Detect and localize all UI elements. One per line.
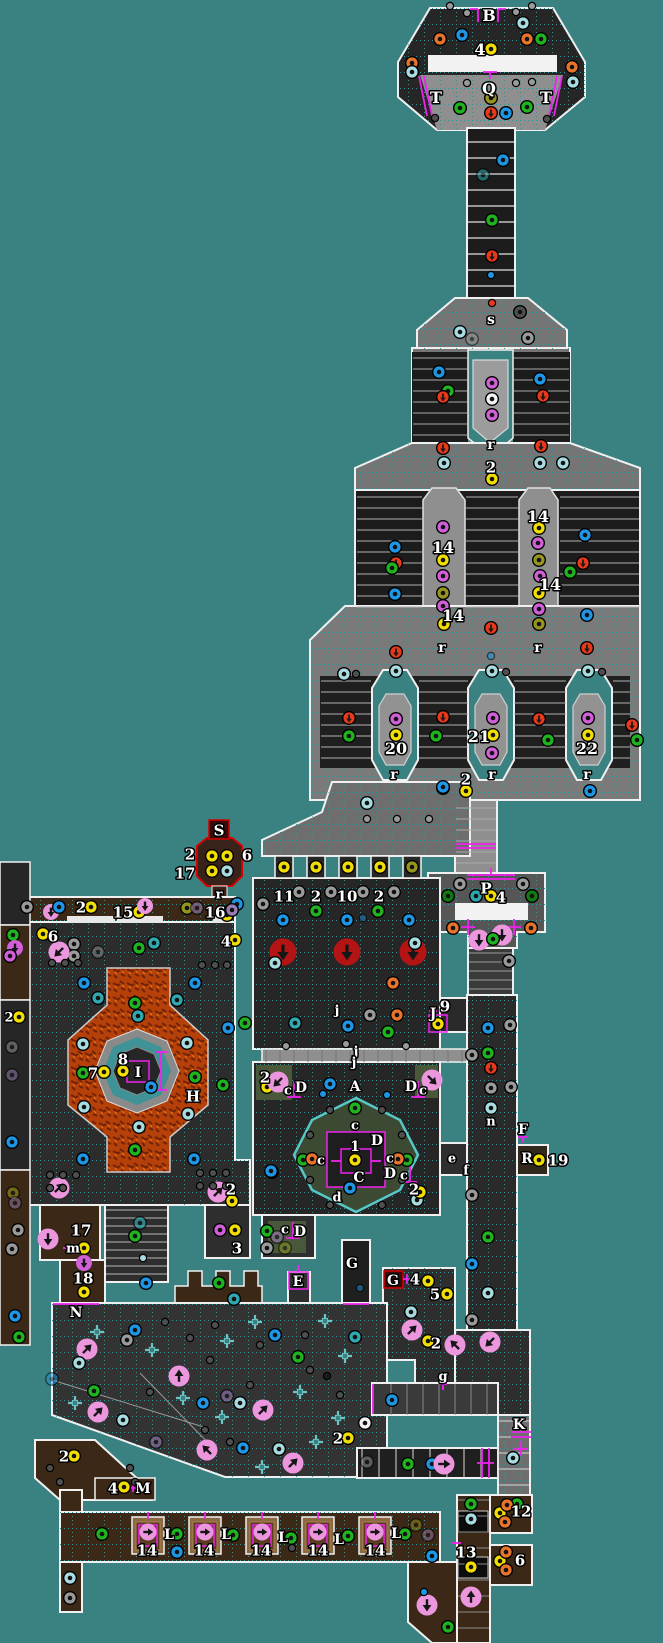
item-ring-marker — [405, 65, 419, 79]
map-label: j — [351, 1056, 357, 1071]
spawn-arrow-marker — [367, 1524, 384, 1541]
item-dot-marker — [323, 1372, 331, 1380]
item-dot-marker — [59, 1171, 67, 1179]
spawn-arrow-marker — [254, 1524, 271, 1541]
map-sector — [355, 490, 640, 622]
map-label: 14 — [251, 1541, 272, 1559]
item-dot-marker — [342, 1040, 350, 1048]
item-ring-marker — [566, 75, 580, 89]
item-ring-marker — [288, 1016, 302, 1030]
item-dot-marker — [543, 115, 551, 123]
arrow-ring-marker — [625, 718, 639, 732]
item-ring-marker — [190, 901, 204, 915]
map-label: j — [334, 1004, 340, 1019]
item-ring-marker — [221, 1021, 235, 1035]
map-label: 4 — [496, 888, 506, 906]
item-dot-marker — [359, 914, 367, 922]
item-ring-marker — [516, 877, 530, 891]
item-ring-marker — [77, 1100, 91, 1114]
item-ring-marker — [465, 1048, 479, 1062]
item-ring-marker — [503, 1018, 517, 1032]
item-ring-marker — [404, 1305, 418, 1319]
item-ring-marker — [371, 904, 385, 918]
item-ring-marker — [453, 101, 467, 115]
map-label: 21 — [468, 727, 490, 746]
item-dot-marker — [211, 1321, 219, 1329]
map-label: r — [488, 767, 496, 783]
item-ring-marker — [520, 100, 534, 114]
item-dot-marker — [425, 815, 433, 823]
level-map-canvas: B4QTTsr214141414rr202122rrr2P4nFR19ef9JS… — [0, 0, 663, 1643]
item-ring-marker — [385, 1393, 399, 1407]
item-ring-marker — [147, 936, 161, 950]
spawn-arrow-marker — [310, 1524, 327, 1541]
map-label: A — [349, 1079, 362, 1095]
map-label: G — [346, 1256, 358, 1272]
item-ring-marker — [337, 667, 351, 681]
item-ring-marker — [389, 664, 403, 678]
map-label: D — [384, 1166, 396, 1182]
item-ring-marker — [117, 1480, 131, 1494]
item-ring-marker — [5, 1135, 19, 1149]
item-ring-marker — [228, 1223, 242, 1237]
map-label: 8 — [118, 1050, 128, 1068]
map-label: E — [293, 1274, 304, 1290]
item-ring-marker — [464, 1497, 478, 1511]
item-dot-marker — [56, 1478, 64, 1486]
map-label: 2 — [260, 1068, 270, 1086]
item-dot-marker — [398, 1131, 406, 1139]
item-ring-marker — [502, 954, 516, 968]
item-ring-marker — [421, 1528, 435, 1542]
item-ring-marker — [131, 1009, 145, 1023]
map-label: r — [487, 437, 495, 453]
spawn-arrow-marker — [434, 1454, 455, 1475]
map-grid-overlay — [355, 443, 640, 492]
item-ring-marker — [481, 1230, 495, 1244]
map-label: 2 — [333, 1429, 343, 1447]
map-label: c — [351, 1119, 359, 1134]
item-ring-marker — [95, 1527, 109, 1541]
map-label: H — [186, 1087, 200, 1105]
item-ring-marker — [277, 860, 291, 874]
item-ring-marker — [583, 784, 597, 798]
item-dot-marker — [326, 1106, 334, 1114]
item-ring-marker — [405, 860, 419, 874]
map-label: 13 — [456, 1543, 477, 1561]
arrow-ring-marker — [580, 641, 594, 655]
map-label: L — [278, 1530, 288, 1546]
item-ring-marker — [341, 1019, 355, 1033]
item-ring-marker — [534, 32, 548, 46]
item-dot-marker — [46, 1464, 54, 1472]
map-label: 4 — [474, 40, 485, 59]
item-dot-marker — [209, 1182, 217, 1190]
item-ring-marker — [236, 1441, 250, 1455]
item-ring-marker — [532, 553, 546, 567]
item-ring-marker — [485, 664, 499, 678]
map-label: 2 — [59, 1447, 69, 1465]
arrow-ring-marker — [342, 711, 356, 725]
item-ring-marker — [12, 1010, 26, 1024]
item-dot-marker — [352, 670, 360, 678]
item-ring-marker — [513, 305, 527, 319]
map-label: 2 — [76, 898, 86, 916]
item-ring-marker — [67, 937, 81, 951]
item-ring-marker — [188, 1070, 202, 1084]
map-label: L — [391, 1526, 401, 1542]
item-ring-marker — [76, 1037, 90, 1051]
item-dot-marker — [246, 1381, 254, 1389]
spawn-arrow-marker — [169, 1366, 190, 1387]
arrow-ring-marker — [484, 1061, 498, 1075]
item-ring-marker — [149, 1435, 163, 1449]
item-ring-marker — [521, 331, 535, 345]
item-ring-marker — [72, 1356, 86, 1370]
item-ring-marker — [8, 1309, 22, 1323]
map-label: 2 — [4, 1011, 13, 1026]
item-ring-marker — [388, 587, 402, 601]
item-ring-marker — [581, 711, 595, 725]
item-ring-marker — [453, 877, 467, 891]
arrow-ring-marker — [484, 621, 498, 635]
item-dot-marker — [226, 1438, 234, 1446]
map-label: 17 — [71, 1221, 92, 1239]
item-ring-marker — [340, 913, 354, 927]
map-label: T — [430, 88, 442, 107]
item-ring-marker — [563, 565, 577, 579]
item-dot-marker — [356, 1284, 364, 1292]
map-label: 3 — [232, 1239, 242, 1257]
item-ring-marker — [481, 1046, 495, 1060]
map-label: 2 — [311, 887, 321, 905]
item-dot-marker — [420, 1588, 428, 1596]
item-ring-marker — [531, 536, 545, 550]
item-ring-marker — [425, 1549, 439, 1563]
arrow-ring-marker — [485, 249, 499, 263]
map-label: 6 — [242, 846, 252, 864]
map-rect — [428, 55, 557, 72]
item-ring-marker — [429, 729, 443, 743]
item-ring-marker — [5, 1068, 19, 1082]
item-ring-marker — [484, 1101, 498, 1115]
item-ring-marker — [6, 928, 20, 942]
item-ring-marker — [52, 900, 66, 914]
item-ring-marker — [5, 1040, 19, 1054]
item-ring-marker — [12, 1330, 26, 1344]
item-ring-marker — [385, 561, 399, 575]
map-label: 15 — [113, 903, 134, 921]
item-dot-marker — [46, 1184, 54, 1192]
item-ring-marker — [486, 932, 500, 946]
item-ring-marker — [504, 1080, 518, 1094]
map-label: r — [438, 640, 446, 656]
item-dot-marker — [402, 1042, 410, 1050]
map-label: d — [332, 1191, 341, 1206]
map-label: D — [294, 1224, 306, 1240]
map-label: 2 — [185, 845, 195, 863]
map-label: c — [386, 1152, 394, 1167]
item-ring-marker — [128, 1143, 142, 1157]
item-ring-marker — [20, 900, 34, 914]
item-dot-marker — [306, 1131, 314, 1139]
map-label: P — [480, 879, 491, 897]
item-dot-marker — [256, 1341, 264, 1349]
item-ring-marker — [5, 1242, 19, 1256]
spawn-arrow-marker — [461, 1587, 482, 1608]
item-dot-marker — [59, 1184, 67, 1192]
item-dot-marker — [209, 1169, 217, 1177]
item-ring-marker — [132, 941, 146, 955]
item-ring-marker — [441, 889, 455, 903]
item-dot-marker — [139, 1254, 147, 1262]
item-ring-marker — [309, 904, 323, 918]
item-ring-marker — [264, 1164, 278, 1178]
item-ring-marker — [213, 1223, 227, 1237]
item-ring-marker — [436, 569, 450, 583]
arrow-ring-marker — [576, 556, 590, 570]
item-dot-marker — [288, 1544, 296, 1552]
item-ring-marker — [181, 1107, 195, 1121]
doom-level-map: B4QTTsr214141414rr202122rrr2P4nFR19ef9JS… — [0, 0, 663, 1643]
item-dot-marker — [222, 1169, 230, 1177]
item-ring-marker — [132, 1120, 146, 1134]
map-label: Q — [482, 79, 496, 98]
map-label: g — [438, 1370, 447, 1385]
item-ring-marker — [341, 860, 355, 874]
item-ring-marker — [401, 1457, 415, 1471]
map-label: 11 — [274, 887, 295, 905]
map-label: 5 — [430, 1285, 440, 1303]
map-label: 4 — [410, 1270, 420, 1288]
item-dot-marker — [46, 1171, 54, 1179]
item-dot-marker — [306, 1366, 314, 1374]
item-dot-marker — [446, 2, 454, 10]
item-ring-marker — [128, 1229, 142, 1243]
item-ring-marker — [45, 1372, 59, 1386]
map-label: I — [135, 1065, 142, 1081]
map-rect — [67, 916, 115, 923]
map-label: e — [448, 1152, 456, 1167]
map-label: S — [214, 821, 225, 839]
item-ring-marker — [170, 1545, 184, 1559]
item-ring-marker — [268, 956, 282, 970]
item-dot-marker — [512, 8, 520, 16]
map-rect — [455, 903, 528, 920]
map-label: 14 — [539, 575, 561, 594]
item-ring-marker — [348, 1153, 362, 1167]
item-ring-marker — [581, 664, 595, 678]
item-ring-marker — [268, 1328, 282, 1342]
item-dot-marker — [393, 815, 401, 823]
map-label: 22 — [576, 739, 598, 758]
item-ring-marker — [499, 1545, 513, 1559]
item-ring-marker — [128, 996, 142, 1010]
item-dot-marker — [198, 961, 206, 969]
item-ring-marker — [116, 1413, 130, 1427]
item-ring-marker — [180, 1036, 194, 1050]
item-ring-marker — [386, 976, 400, 990]
item-ring-marker — [446, 921, 460, 935]
item-ring-marker — [216, 1078, 230, 1092]
map-label: 4 — [221, 932, 231, 950]
spawn-arrow-marker — [197, 1524, 214, 1541]
item-ring-marker — [433, 32, 447, 46]
item-ring-marker — [373, 860, 387, 874]
item-ring-marker — [499, 1563, 513, 1577]
item-ring-marker — [238, 1016, 252, 1030]
item-ring-marker — [516, 16, 530, 30]
map-label: 2 — [461, 770, 471, 788]
item-ring-marker — [272, 1442, 286, 1456]
map-label: c — [281, 1223, 289, 1238]
item-ring-marker — [533, 456, 547, 470]
map-sector — [197, 838, 242, 886]
item-ring-marker — [499, 106, 513, 120]
arrow-ring-marker — [484, 106, 498, 120]
item-ring-marker — [506, 1451, 520, 1465]
item-dot-marker — [598, 668, 606, 676]
item-dot-marker — [146, 1388, 154, 1396]
arrow-ring-marker — [534, 439, 548, 453]
item-ring-marker — [525, 889, 539, 903]
item-ring-marker — [524, 921, 538, 935]
map-label: 12 — [511, 1502, 532, 1520]
map-label: 1 — [350, 1139, 360, 1155]
item-dot-marker — [383, 1091, 391, 1099]
item-ring-marker — [227, 1292, 241, 1306]
map-label: 2 — [409, 1180, 419, 1198]
item-dot-marker — [502, 668, 510, 676]
item-ring-marker — [409, 1518, 423, 1532]
item-dot-marker — [528, 78, 536, 86]
item-ring-marker — [3, 949, 17, 963]
item-ring-marker — [437, 456, 451, 470]
item-ring-marker — [196, 1396, 210, 1410]
item-ring-marker — [188, 976, 202, 990]
item-dot-marker — [488, 299, 496, 307]
spawn-arrow-marker — [140, 1524, 157, 1541]
map-label: r — [390, 767, 398, 783]
item-ring-marker — [120, 1333, 134, 1347]
map-label: c — [284, 1084, 292, 1099]
item-ring-marker — [360, 796, 374, 810]
item-dot-marker — [161, 1318, 169, 1326]
item-ring-marker — [496, 153, 510, 167]
spawn-arrow-marker — [417, 1595, 438, 1616]
item-dot-marker — [74, 959, 82, 967]
map-label: r — [583, 767, 591, 783]
item-dot-marker — [61, 959, 69, 967]
item-ring-marker — [465, 332, 479, 346]
map-label: D — [405, 1079, 417, 1095]
item-dot-marker — [48, 959, 56, 967]
item-dot-marker — [378, 1106, 386, 1114]
item-dot-marker — [487, 271, 495, 279]
item-ring-marker — [63, 1571, 77, 1585]
map-label: 10 — [337, 887, 358, 905]
map-label: R — [521, 1151, 533, 1167]
item-ring-marker — [348, 1330, 362, 1344]
map-label: 7 — [88, 1064, 98, 1082]
item-ring-marker — [358, 1416, 372, 1430]
spawn-arrow-marker — [137, 898, 153, 914]
map-label: L — [334, 1532, 344, 1548]
item-ring-marker — [256, 897, 270, 911]
item-ring-marker — [360, 1455, 374, 1469]
map-label: 9 — [440, 997, 450, 1015]
item-ring-marker — [465, 1313, 479, 1327]
item-ring-marker — [389, 712, 403, 726]
item-ring-marker — [532, 617, 546, 631]
map-label: c — [400, 1169, 408, 1184]
map-label: 19 — [548, 1151, 569, 1169]
item-dot-marker — [431, 114, 439, 122]
item-ring-marker — [348, 1101, 362, 1115]
item-dot-marker — [211, 961, 219, 969]
item-ring-marker — [455, 28, 469, 42]
item-ring-marker — [220, 1389, 234, 1403]
item-ring-marker — [260, 1241, 274, 1255]
item-ring-marker — [8, 1196, 22, 1210]
item-dot-marker — [512, 79, 520, 87]
map-label: 14 — [137, 1541, 158, 1559]
map-label: T — [540, 88, 552, 107]
item-ring-marker — [387, 885, 401, 899]
arrow-ring-marker — [436, 710, 450, 724]
item-ring-marker — [220, 864, 234, 878]
item-ring-marker — [481, 1286, 495, 1300]
item-ring-marker — [533, 372, 547, 386]
item-ring-marker — [212, 1276, 226, 1290]
item-ring-marker — [485, 408, 499, 422]
item-ring-marker — [441, 1620, 455, 1634]
item-ring-marker — [63, 1591, 77, 1605]
item-ring-marker — [205, 864, 219, 878]
map-label: r — [534, 640, 542, 656]
arrow-ring-marker — [532, 712, 546, 726]
item-ring-marker — [481, 1021, 495, 1035]
item-ring-marker — [323, 1077, 337, 1091]
item-ring-marker — [440, 1287, 454, 1301]
map-label: 20 — [385, 739, 407, 758]
map-label: C — [353, 1170, 364, 1186]
map-label: c — [317, 1154, 325, 1169]
item-dot-marker — [528, 2, 536, 10]
item-ring-marker — [402, 913, 416, 927]
item-ring-marker — [486, 711, 500, 725]
map-label: 17 — [175, 864, 196, 882]
map-label: L — [221, 1527, 231, 1543]
map-label: s — [487, 312, 495, 328]
map-sector — [0, 862, 30, 925]
item-ring-marker — [205, 849, 219, 863]
item-ring-marker — [578, 528, 592, 542]
item-ring-marker — [436, 780, 450, 794]
map-label: 18 — [73, 1269, 94, 1287]
map-label: D — [295, 1080, 307, 1096]
item-ring-marker — [532, 602, 546, 616]
item-dot-marker — [186, 1334, 194, 1342]
item-ring-marker — [484, 42, 498, 56]
map-label: n — [486, 1115, 496, 1130]
item-dot-marker — [196, 1169, 204, 1177]
item-dot-marker — [336, 1391, 344, 1399]
item-dot-marker — [363, 815, 371, 823]
item-ring-marker — [77, 976, 91, 990]
item-ring-marker — [520, 32, 534, 46]
item-ring-marker — [432, 365, 446, 379]
